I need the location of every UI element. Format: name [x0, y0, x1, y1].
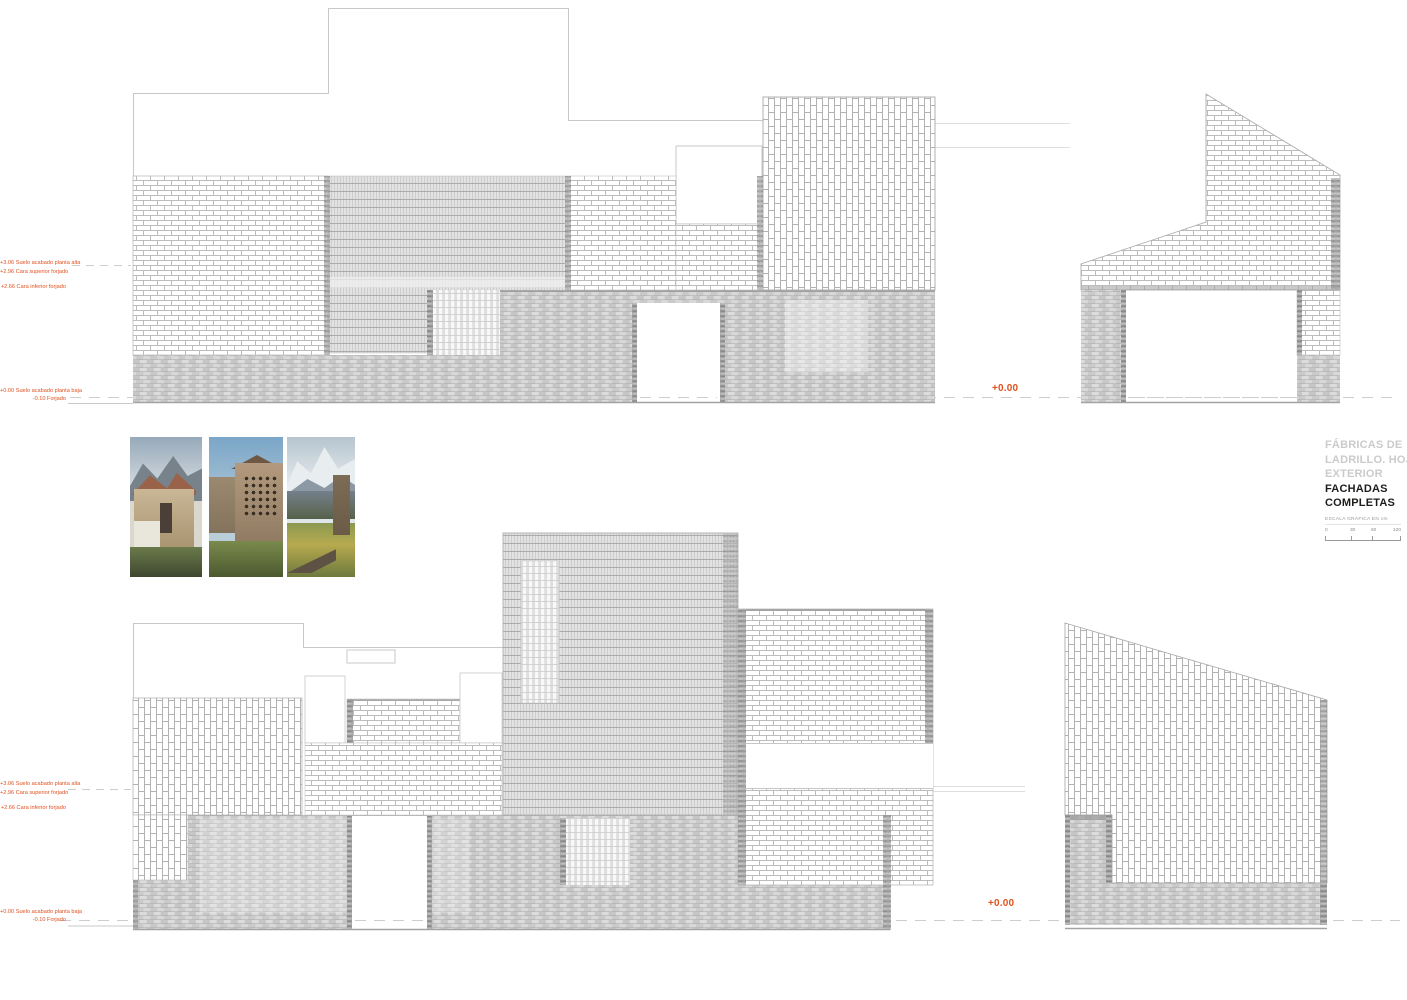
series-title-line: EXTERIOR [1325, 467, 1405, 482]
level-label-upper-3: +2.66 Cara inferior forjado [0, 284, 66, 290]
door-opening [637, 303, 720, 402]
series-title-line: LADRILLO. HOJA [1325, 453, 1405, 468]
level-label-upper-1: +3.06 Suelo acabado planta alta [0, 260, 66, 266]
reference-photo-2 [209, 437, 283, 577]
level-label-upper-1b: +3.06 Suelo acabado planta alta [0, 781, 66, 787]
scale-bar-line [1325, 536, 1401, 541]
door-opening [352, 816, 427, 929]
scale-tick: 60 [1371, 528, 1376, 533]
level-label-ground-1b: +0.00 Suelo acabado planta baja [0, 909, 66, 915]
drawing-sheet: +3.06 Suelo acabado planta alta +2.96 Ca… [0, 0, 1407, 1000]
level-label-ground-2: -0.10 Forjado [0, 396, 66, 402]
top-right-elevation [1081, 94, 1340, 402]
level-label-upper-2: +2.96 Cara superior forjado [0, 269, 66, 275]
reference-photo-1 [130, 437, 202, 577]
scale-tick: 120 [1393, 528, 1401, 533]
scale-tick: 30 [1350, 528, 1355, 533]
level-label-upper-3b: +2.66 Cara inferior forjado [0, 805, 66, 811]
scale-tick-labels: 0 30 60 120 [1325, 528, 1401, 535]
bottom-left-elevation [133, 533, 933, 930]
datum-marker-top: +0.00 [992, 383, 1018, 394]
level-label-ground-1: +0.00 Suelo acabado planta baja [0, 388, 66, 394]
bottom-right-elevation [1065, 623, 1327, 925]
top-left-elevation [133, 9, 935, 403]
series-title-line: FÁBRICAS DE [1325, 438, 1405, 453]
scale-tick: 0 [1325, 528, 1328, 533]
title-block: FÁBRICAS DE LADRILLO. HOJA EXTERIOR FACH… [1325, 438, 1405, 541]
sheet-title-line: FACHADAS [1325, 482, 1405, 497]
datum-marker-bottom: +0.00 [988, 898, 1014, 909]
level-label-upper-2b: +2.96 Cara superior forjado [0, 790, 66, 796]
sheet-title-line: COMPLETAS [1325, 496, 1405, 511]
reference-photo-3 [287, 437, 355, 577]
scale-label: ESCALA GRÁFICA EN cm [1325, 517, 1401, 522]
level-label-ground-2b: -0.10 Forjado [0, 917, 66, 923]
graphic-scale-bar: ESCALA GRÁFICA EN cm 0 30 60 120 [1325, 517, 1401, 541]
scale-rule [1325, 524, 1401, 525]
